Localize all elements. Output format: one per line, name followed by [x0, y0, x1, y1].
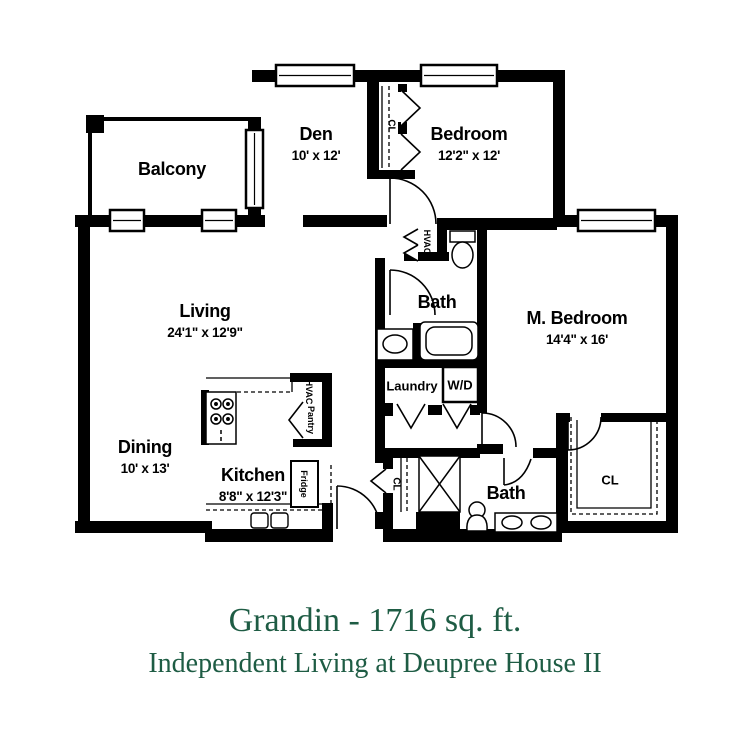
closet-bedroom-label: CL	[386, 119, 397, 132]
closet-master-label: CL	[601, 473, 618, 488]
double-vanity-icon	[495, 513, 557, 532]
pantry-label: Pantry	[306, 406, 316, 434]
room-dims-bedroom: 12'2" x 12'	[431, 148, 508, 163]
bathtub-icon	[420, 322, 478, 360]
toilet-upper-icon	[450, 231, 475, 268]
hvac-hall-label: HVAC	[422, 230, 432, 255]
stove-icon	[206, 392, 236, 444]
closet-hall-label: CL	[391, 477, 402, 490]
room-label-kitchen: Kitchen 8'8" x 12'3"	[219, 466, 287, 504]
room-label-bedroom: Bedroom 12'2" x 12'	[431, 125, 508, 163]
vanity-sink-upper-icon	[377, 329, 413, 360]
plan-title: Grandin - 1716 sq. ft.	[0, 602, 750, 640]
hvac-kitchen-label: HVAC	[304, 380, 314, 405]
room-dims-master: 14'4" x 16'	[526, 332, 627, 347]
room-label-bath-lower: Bath	[487, 484, 526, 504]
fridge-label: Fridge	[299, 470, 309, 498]
washer-dryer-label: W/D	[447, 378, 472, 393]
room-label-dining: Dining 10' x 13'	[118, 438, 172, 476]
plan-subtitle: Independent Living at Deupree House II	[0, 648, 750, 680]
room-label-master-bedroom: M. Bedroom 14'4" x 16'	[526, 309, 627, 347]
room-label-living: Living 24'1" x 12'9"	[167, 302, 242, 340]
room-dims-kitchen: 8'8" x 12'3"	[219, 489, 287, 504]
kitchen-sink-icon	[251, 513, 288, 528]
room-dims-dining: 10' x 13'	[118, 461, 172, 476]
laundry-label: Laundry	[386, 379, 437, 394]
room-label-balcony: Balcony	[138, 160, 206, 180]
floorplan-page: Balcony Den 10' x 12' Bedroom 12'2" x 12…	[0, 0, 750, 750]
room-dims-den: 10' x 12'	[292, 148, 341, 163]
toilet-lower-icon	[467, 502, 487, 531]
room-dims-living: 24'1" x 12'9"	[167, 325, 242, 340]
room-label-bath-upper: Bath	[418, 293, 457, 313]
room-label-den: Den 10' x 12'	[292, 125, 341, 163]
shower-icon	[419, 456, 460, 512]
